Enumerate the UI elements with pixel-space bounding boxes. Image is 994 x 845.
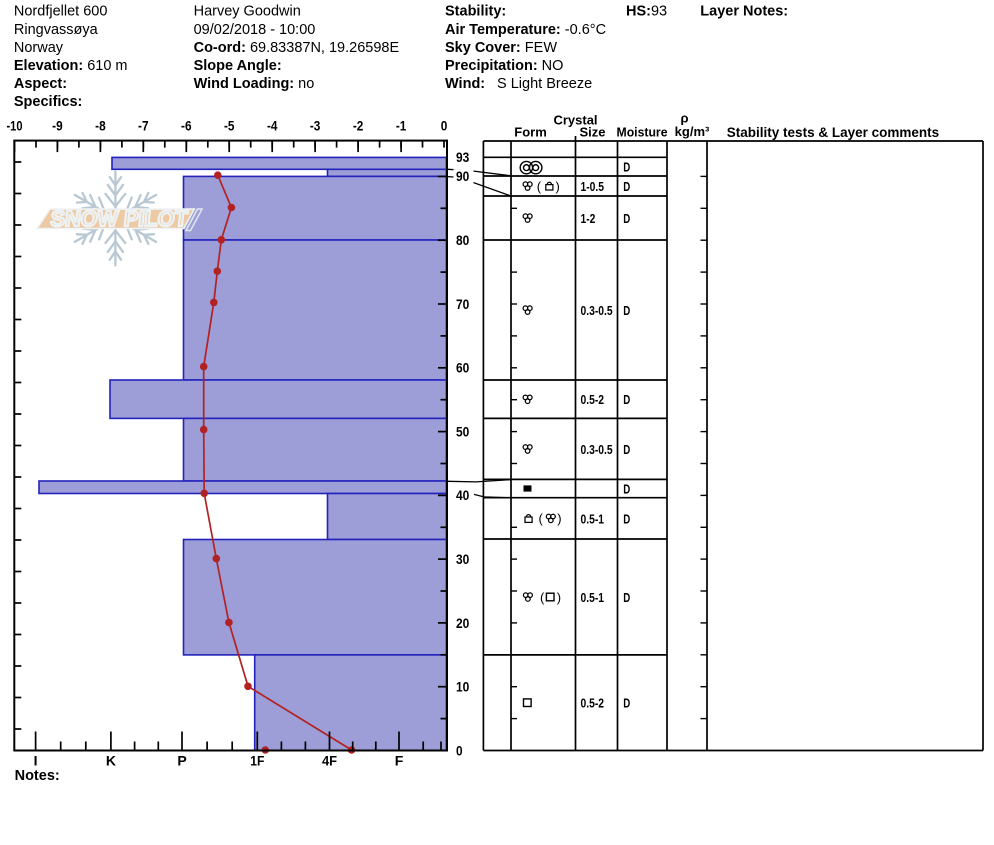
svg-text:): ): [557, 590, 561, 605]
svg-text:kg/m³: kg/m³: [675, 124, 710, 139]
svg-text:D: D: [623, 304, 630, 318]
svg-text:-1: -1: [396, 118, 407, 134]
svg-text:Stability tests & Layer commen: Stability tests & Layer comments: [727, 125, 939, 140]
svg-text:0.5-2: 0.5-2: [581, 393, 605, 407]
svg-text:P: P: [177, 753, 186, 769]
svg-text:1-2: 1-2: [581, 212, 596, 226]
svg-text:): ): [557, 511, 561, 526]
svg-text:Notes:: Notes:: [15, 768, 60, 784]
svg-text:D: D: [623, 180, 630, 194]
svg-text:Co-ord: 69.83387N, 19.26598E: Co-ord: 69.83387N, 19.26598E: [194, 40, 400, 56]
svg-text:09/02/2018 - 10:00: 09/02/2018 - 10:00: [194, 22, 316, 38]
svg-text:I: I: [34, 753, 38, 769]
svg-text:D: D: [623, 591, 630, 605]
svg-text:D: D: [623, 212, 630, 226]
svg-text:0.3-0.5: 0.3-0.5: [581, 443, 613, 457]
svg-text:70: 70: [456, 296, 469, 312]
svg-text:-6: -6: [181, 118, 192, 134]
svg-text:20: 20: [456, 615, 469, 631]
svg-text:30: 30: [456, 551, 469, 567]
svg-text:Sky Cover: FEW: Sky Cover: FEW: [445, 40, 557, 56]
svg-text:(: (: [540, 590, 545, 605]
svg-text:Nordfjellet 600: Nordfjellet 600: [14, 4, 108, 20]
svg-text:D: D: [623, 483, 630, 497]
svg-text:-5: -5: [224, 118, 235, 134]
svg-text:0.5-1: 0.5-1: [581, 591, 605, 605]
svg-text:D: D: [623, 161, 630, 175]
svg-text:Specifics:: Specifics:: [14, 94, 83, 110]
svg-text:(: (: [537, 179, 542, 194]
svg-text:-4: -4: [267, 118, 278, 134]
svg-text:-8: -8: [95, 118, 106, 134]
svg-text:D: D: [623, 393, 630, 407]
svg-text:Ringvassøya: Ringvassøya: [14, 22, 99, 38]
svg-text:1-0.5: 1-0.5: [581, 180, 605, 194]
svg-text:Harvey Goodwin: Harvey Goodwin: [194, 4, 301, 20]
svg-text:HS:93: HS:93: [626, 4, 667, 20]
svg-text:Norway: Norway: [14, 40, 64, 56]
svg-text:0: 0: [441, 118, 448, 134]
svg-text:0.5-1: 0.5-1: [581, 512, 605, 526]
svg-text:50: 50: [456, 423, 469, 439]
svg-text:D: D: [623, 697, 630, 711]
svg-text:Air Temperature: -0.6°C: Air Temperature: -0.6°C: [445, 22, 606, 38]
svg-text:Precipitation: NO: Precipitation: NO: [445, 58, 563, 74]
svg-text:Slope Angle:: Slope Angle:: [194, 58, 282, 74]
svg-text:0.3-0.5: 0.3-0.5: [581, 304, 613, 318]
svg-text:(: (: [539, 511, 544, 526]
svg-text:60: 60: [456, 360, 469, 376]
svg-text:D: D: [623, 512, 630, 526]
svg-text:Layer Notes:: Layer Notes:: [700, 4, 788, 20]
svg-text:D: D: [623, 443, 630, 457]
svg-text:Wind: S Light Breeze: Wind: S Light Breeze: [445, 76, 592, 92]
svg-text:Form: Form: [514, 125, 547, 140]
svg-text:10: 10: [456, 679, 469, 695]
svg-text:80: 80: [456, 232, 469, 248]
svg-text:Aspect:: Aspect:: [14, 76, 67, 92]
svg-text:SNOW PILOT: SNOW PILOT: [49, 206, 189, 231]
svg-text:Wind Loading: no: Wind Loading: no: [194, 76, 315, 92]
svg-text:): ): [556, 179, 560, 194]
svg-text:40: 40: [456, 487, 469, 503]
svg-text:Elevation: 610 m: Elevation: 610 m: [14, 58, 128, 74]
svg-text:93: 93: [456, 149, 469, 165]
svg-text:Moisture: Moisture: [617, 125, 668, 140]
svg-text:-9: -9: [52, 118, 63, 134]
svg-text:-7: -7: [138, 118, 149, 134]
svg-text:0: 0: [456, 742, 463, 758]
svg-text:-3: -3: [310, 118, 321, 134]
svg-text:90: 90: [456, 168, 469, 184]
svg-text:Stability:: Stability:: [445, 4, 506, 20]
svg-text:K: K: [106, 753, 116, 769]
svg-text:-2: -2: [353, 118, 364, 134]
svg-text:F: F: [395, 753, 404, 769]
svg-text:-10: -10: [7, 118, 23, 134]
svg-text:1F: 1F: [250, 753, 264, 769]
svg-text:4F: 4F: [322, 753, 338, 769]
svg-text:Size: Size: [579, 125, 605, 140]
svg-text:0.5-2: 0.5-2: [581, 697, 605, 711]
